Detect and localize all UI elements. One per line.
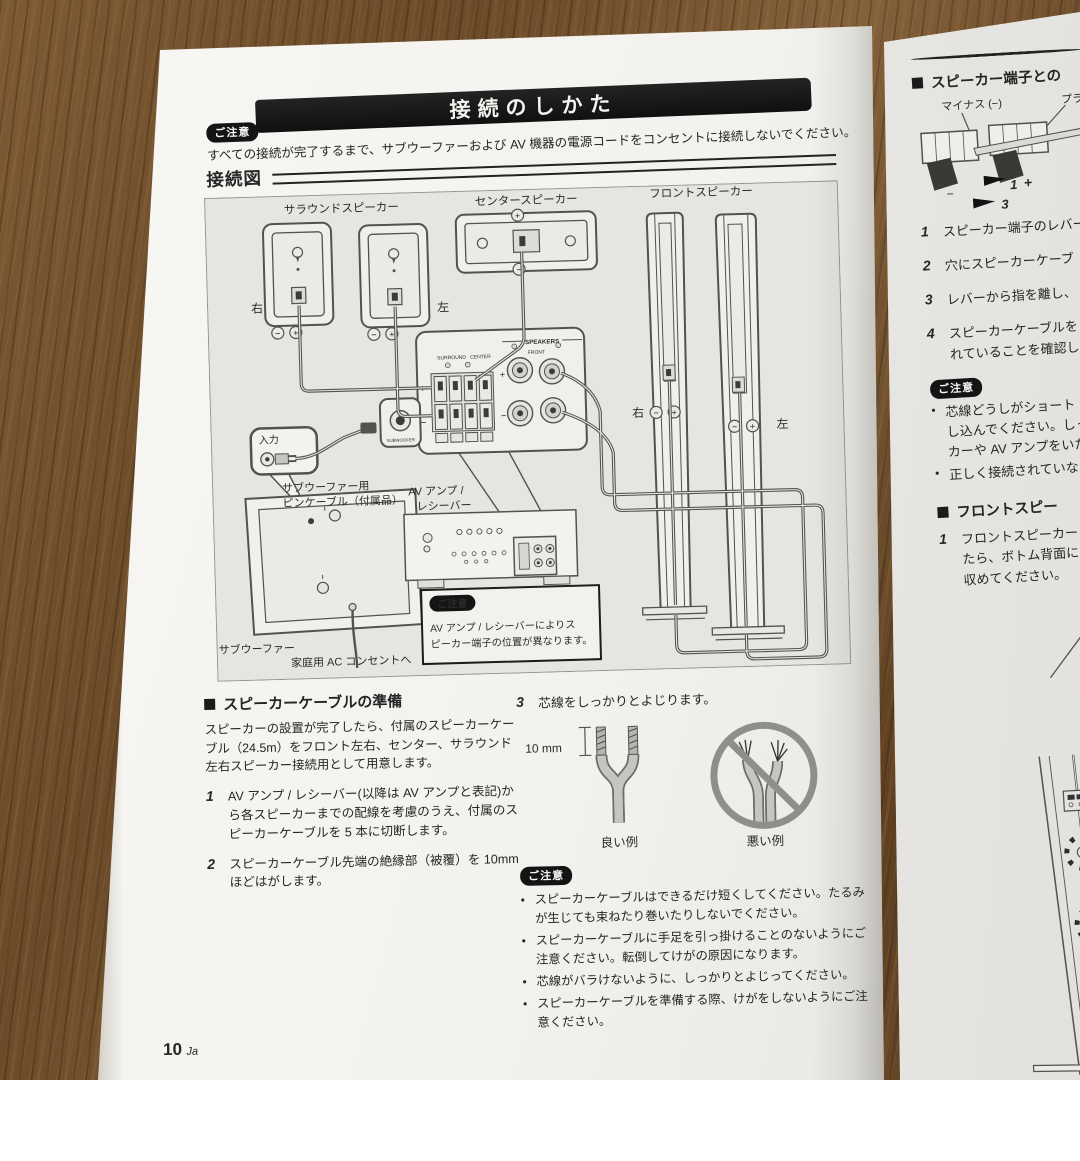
svg-text:−: −	[653, 408, 659, 418]
twist-step-3: 3 芯線をしっかりとよじります。	[516, 686, 856, 713]
good-example-label: 良い例	[600, 834, 638, 850]
svg-text:−: −	[371, 330, 377, 340]
bullet-dot: •	[935, 466, 950, 487]
good-example-drawing	[596, 726, 639, 823]
step-line: スピーカー端子のレバー	[942, 214, 1080, 243]
step-number: 3	[516, 694, 538, 714]
right-heading-2: フロントスピー	[937, 491, 1080, 523]
square-bullet-icon	[937, 507, 949, 519]
step-number: 1	[206, 787, 229, 844]
prep-step-2: 2 スピーカーケーブル先端の絶縁部（被覆）を 10mm ほどはがします。	[207, 849, 522, 893]
right-heading-1: スピーカー端子との	[911, 62, 1080, 94]
pin-plug	[360, 422, 376, 433]
section-heading-text: 接続図	[206, 165, 262, 192]
right-step-2: 2 穴にスピーカーケーブ	[922, 247, 1080, 278]
surround-right-label: 右	[251, 300, 263, 315]
right-caution-item: • 芯線どうしがショート（接 し込んでください。しっか カーや AV アンプをい…	[931, 392, 1080, 463]
page-footer: 10 Ja	[163, 1040, 198, 1060]
wire-twist-illustration: 10 mm	[517, 710, 856, 856]
caution-item: • スピーカーケーブルはできるだけ短くしてください。たるみ が生じても束ねたり巻…	[520, 883, 861, 929]
amp-front-label: FRONT	[528, 350, 545, 356]
svg-text:+: +	[515, 211, 521, 221]
front-right-label: 右	[632, 405, 644, 420]
step-number: 1	[920, 222, 943, 243]
terminal-minus: −	[946, 187, 954, 201]
av-amp-label-2: レシーバー	[417, 499, 472, 514]
prep-step-1: 1 AV アンプ / レシーバー(以降は AV アンプと表記)か ら各スピーカー…	[206, 782, 521, 845]
photo-scene: 接続のしかた ご注意 すべての接続が完了するまで、サブウーファーおよび AV 機…	[0, 0, 1080, 1080]
step-line: 穴にスピーカーケーブ	[944, 249, 1074, 277]
bullet-dot: •	[522, 973, 536, 992]
square-bullet-icon	[912, 77, 924, 89]
front-left-label: 左	[776, 416, 788, 431]
connection-diagram: サラウンドスピーカー センタースピーカー フロントスピーカー 右 − +	[204, 180, 851, 682]
arrow-3-number: 3	[1001, 196, 1010, 211]
amp-subwoofer-label: SUBWOOFER	[387, 437, 415, 443]
right-step-3: 3 レバーから指を離し、	[924, 281, 1080, 312]
prep-section: スピーカーケーブルの準備 スピーカーの設置が完了したら、付属のスピーカーケー ブ…	[204, 688, 522, 893]
step-number: 2	[207, 855, 230, 893]
right-page-content: スピーカー端子との マイナス (−) プラス 1	[910, 39, 1080, 1161]
svg-text:−: −	[275, 328, 281, 338]
bullet-dot: •	[523, 995, 538, 1033]
front-speaker-bottom-illustration	[988, 587, 1080, 1158]
top-rule	[910, 48, 1080, 61]
plus-terminal-label: プラス	[1061, 89, 1080, 107]
posts-minus-sign: −	[501, 411, 507, 421]
amp-center-label: CENTER	[470, 354, 491, 361]
bad-example-drawing	[713, 724, 815, 826]
right-heading-1-text: スピーカー端子との	[930, 64, 1061, 93]
step-number: 4	[926, 325, 950, 367]
svg-text:+: +	[750, 421, 756, 431]
step-line: レバーから指を離し、	[946, 283, 1077, 311]
av-amp-illustration	[404, 510, 578, 589]
svg-text:+: +	[293, 328, 299, 338]
input-label: 入力	[259, 433, 279, 447]
arrow-1-number: 1	[1010, 177, 1018, 192]
step-number: 2	[922, 256, 945, 277]
center-speaker-illustration	[456, 211, 598, 273]
diagram-note-box: ご注意 AV アンプ / レシーバーによりス ピーカー端子の位置が異なります。	[421, 585, 601, 664]
spine-shadow	[812, 0, 884, 1080]
right-caution-badge: ご注意	[930, 377, 983, 399]
lever-left	[927, 157, 959, 191]
svg-text:+: +	[389, 329, 395, 339]
svg-text:−: −	[732, 422, 738, 432]
amp-speakers-label: SPEAKERS	[525, 338, 559, 346]
right-heading-2-text: フロントスピー	[956, 495, 1059, 522]
twist-caution-badge: ご注意	[520, 866, 572, 886]
svg-text:+: +	[671, 407, 677, 417]
step-line: 芯線をしっかりとよじります。	[538, 689, 716, 712]
surround-left-label: 左	[437, 299, 449, 314]
right-step-f1: 1 フロントスピーカー たら、ボトム背面に 収めてください。	[939, 520, 1080, 591]
av-amp-label-1: AV アンプ /	[408, 484, 465, 499]
prep-heading: スピーカーケーブルの準備	[223, 690, 402, 714]
note-badge: ご注意	[437, 597, 467, 611]
speaker-base	[1033, 1055, 1080, 1079]
amp-surround-label: SURROUND	[437, 355, 466, 362]
bullet-dot: •	[521, 932, 536, 970]
arrow-3-icon	[973, 197, 996, 208]
bad-example-label: 悪い例	[747, 834, 785, 849]
page-number: 10	[163, 1040, 182, 1059]
step-number: 3	[924, 291, 947, 312]
right-step-1: 1 スピーカー端子のレバー	[920, 213, 1080, 244]
arrow-plus: +	[1024, 174, 1033, 190]
caution-badge: ご注意	[206, 122, 259, 143]
measure-label: 10 mm	[525, 741, 562, 756]
bullet-dot: •	[520, 891, 535, 929]
square-bullet-icon	[204, 699, 215, 710]
left-page-edge-shadow	[98, 0, 124, 1080]
terminal-lever-illustration: 1 + − 3	[914, 103, 1080, 214]
right-step-4: 4 スピーカーケーブルを れていることを確認し	[926, 315, 1080, 366]
page-language: Ja	[186, 1046, 198, 1058]
posts-plus-sign: +	[500, 370, 506, 380]
